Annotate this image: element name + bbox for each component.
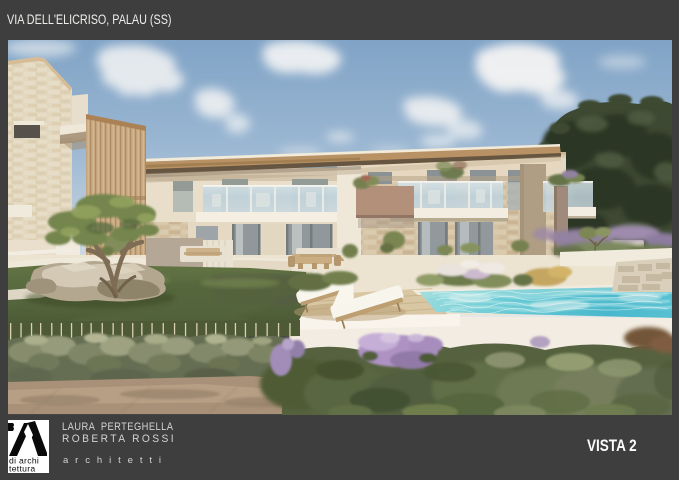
svg-text:tettura: tettura: [9, 464, 35, 474]
